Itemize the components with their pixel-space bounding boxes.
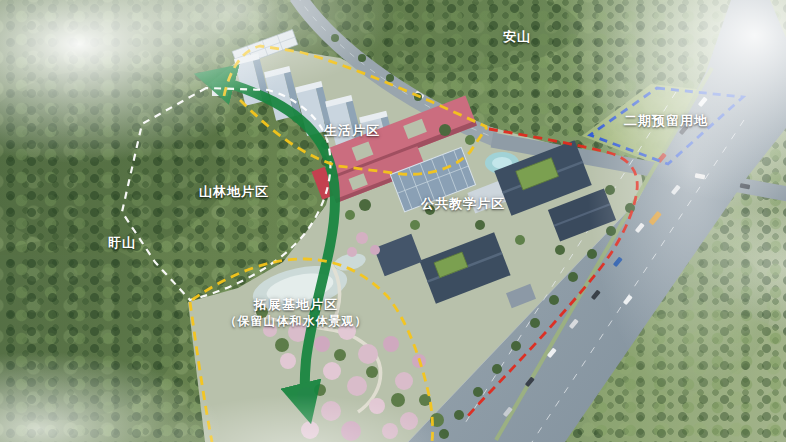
label-forest-zone: 山林地片区 <box>199 184 269 201</box>
site-plan-canvas <box>0 0 786 442</box>
label-expansion-zone: 拓展基地片区 （保留山体和水体景观） <box>225 297 368 329</box>
label-expansion-zone-line1: 拓展基地片区 <box>225 297 368 314</box>
label-teaching-quarter: 公共教学片区 <box>421 196 505 213</box>
label-living-quarter: 生活片区 <box>324 123 380 140</box>
label-expansion-zone-line2: （保留山体和水体景观） <box>225 314 368 330</box>
label-phase2-reserved: 二期预留用地 <box>624 113 708 130</box>
label-anshan-mountain: 安山 <box>503 29 531 46</box>
aerial-masterplan-rendering: 安山 二期预留用地 生活片区 山林地片区 盱山 公共教学片区 拓展基地片区 （保… <box>0 0 786 442</box>
label-xushan-mountain: 盱山 <box>108 235 136 252</box>
